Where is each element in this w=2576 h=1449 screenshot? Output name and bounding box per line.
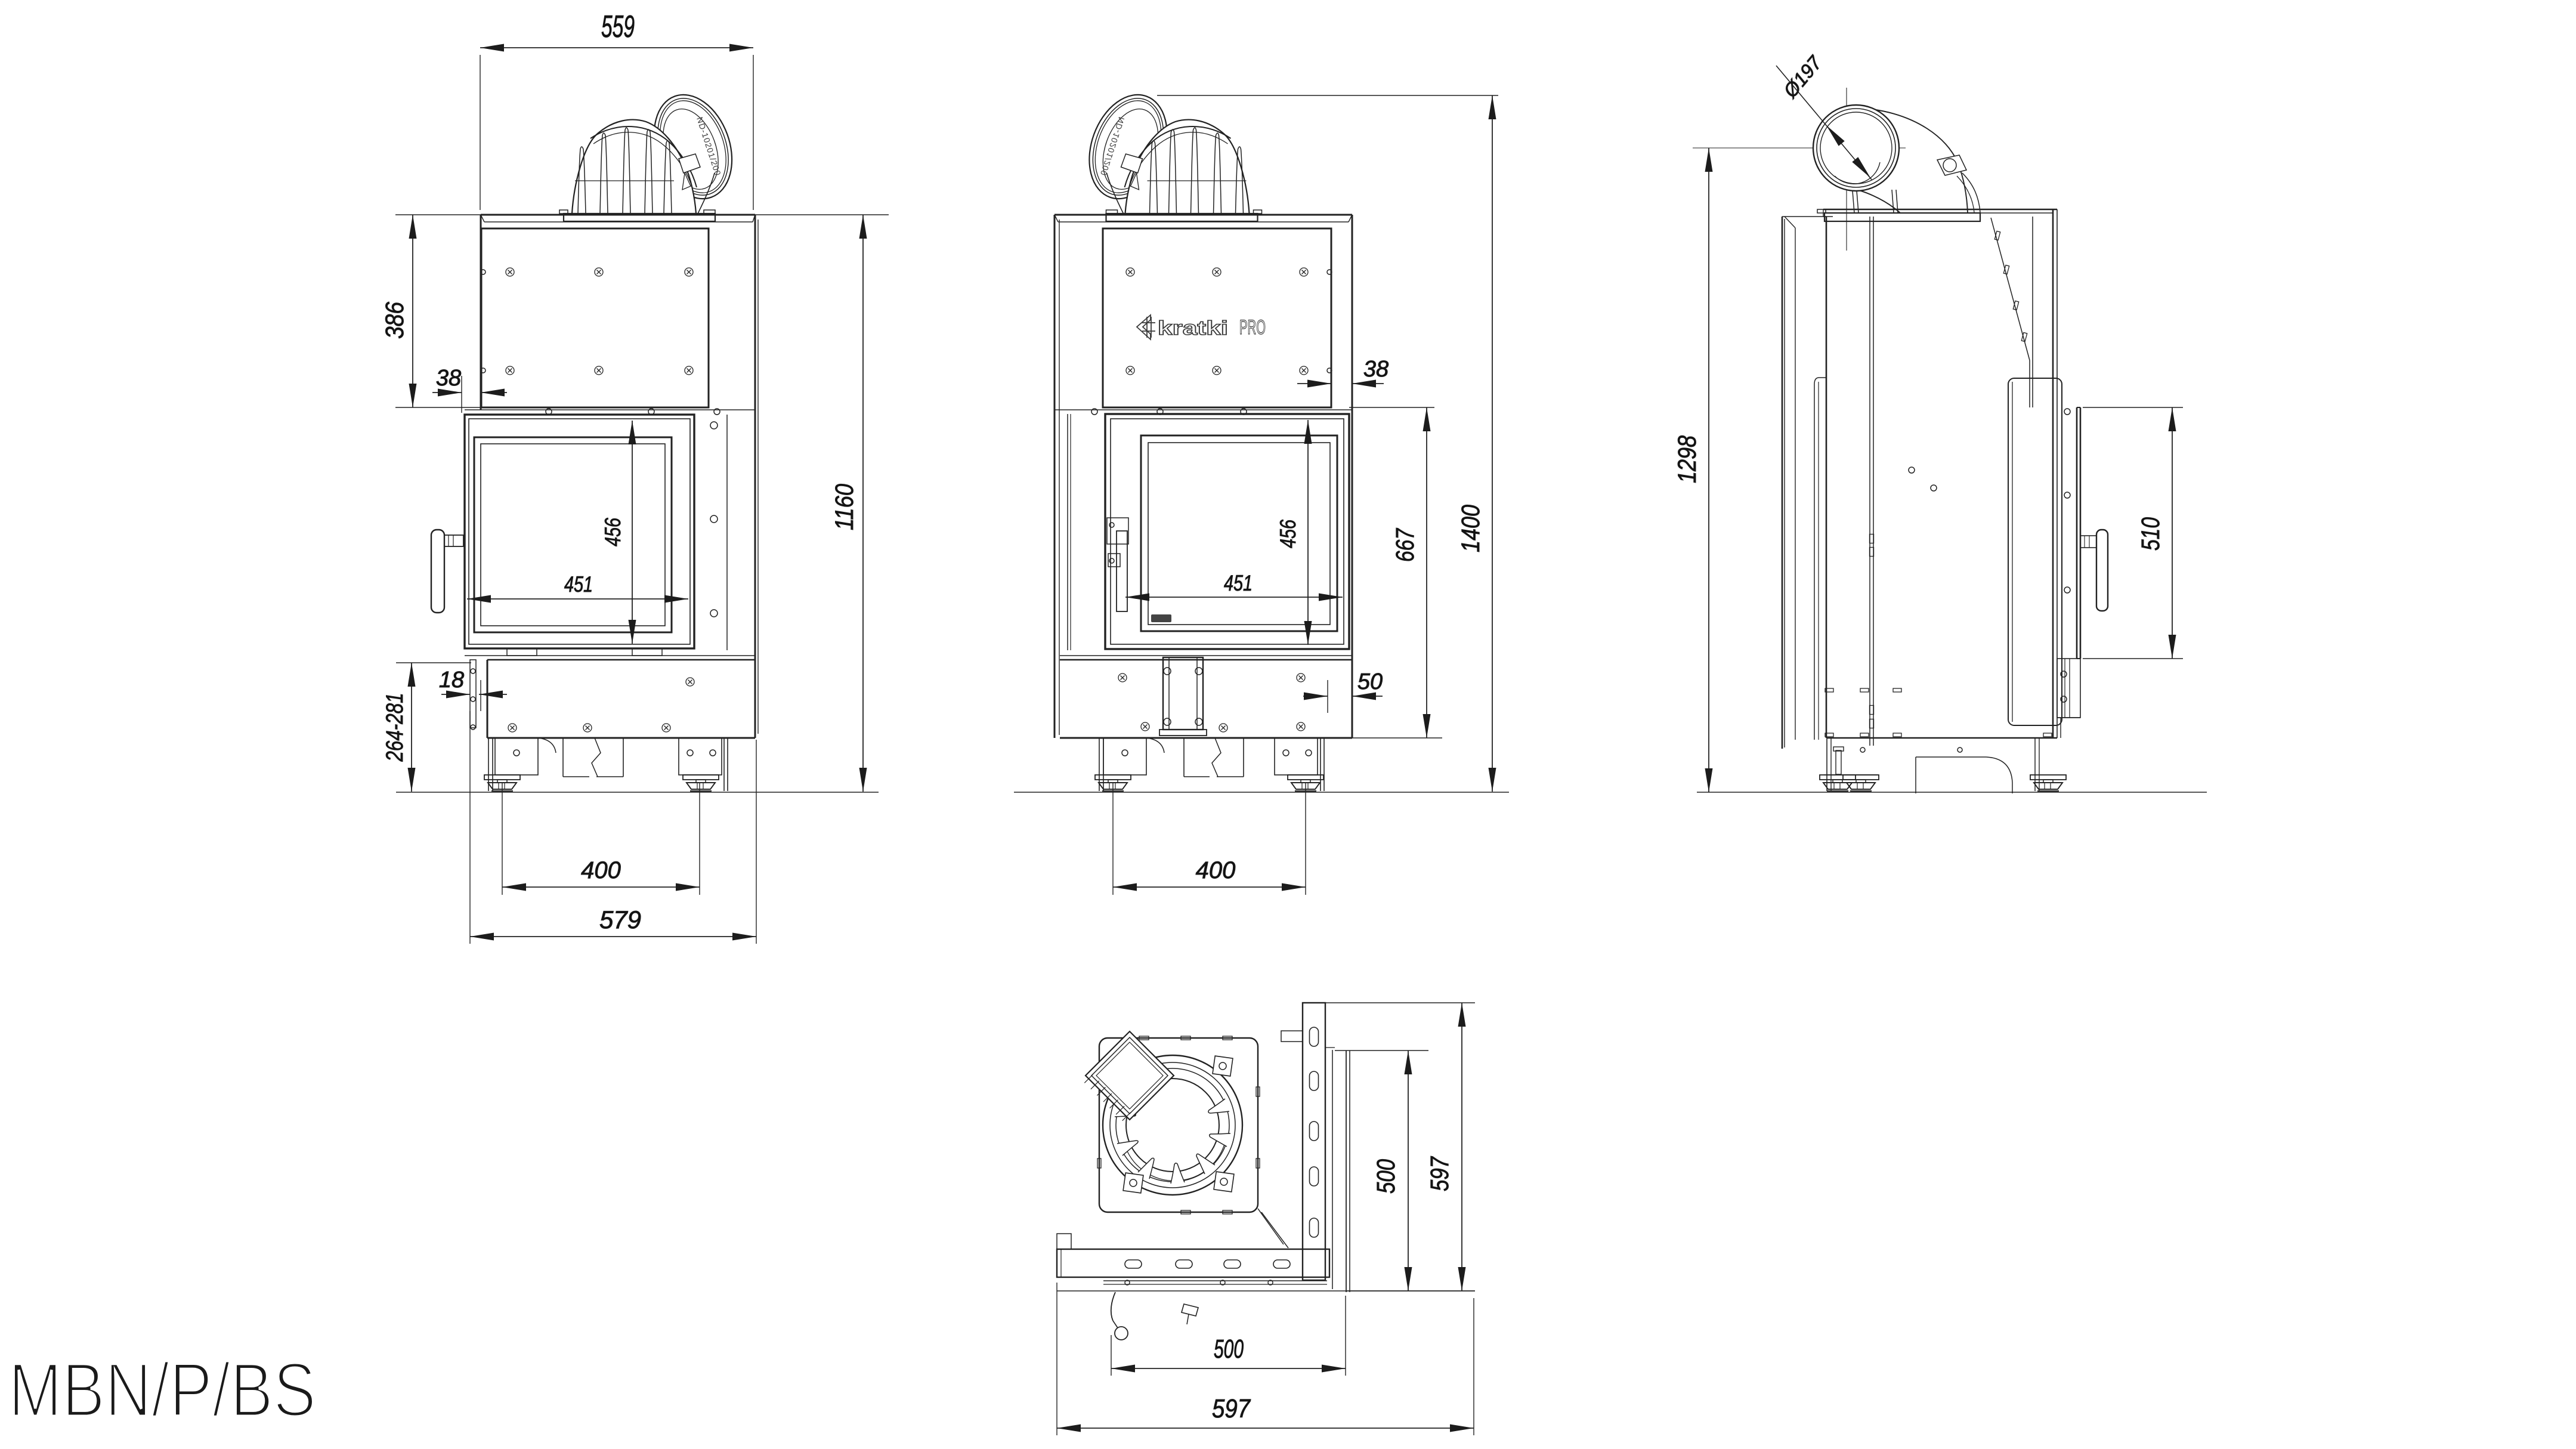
svg-text:400: 400	[581, 857, 621, 883]
svg-text:1160: 1160	[830, 484, 859, 530]
svg-text:264-281: 264-281	[382, 693, 408, 762]
svg-text:500: 500	[1372, 1159, 1400, 1194]
svg-text:1400: 1400	[1456, 505, 1485, 552]
svg-text:579: 579	[599, 906, 641, 934]
svg-text:PRO: PRO	[1239, 316, 1266, 339]
svg-text:667: 667	[1391, 527, 1420, 562]
svg-text:451: 451	[1224, 571, 1253, 595]
svg-text:MBN/P/BS: MBN/P/BS	[8, 1348, 316, 1433]
svg-text:1298: 1298	[1673, 435, 1702, 483]
svg-text:451: 451	[564, 572, 593, 597]
svg-text:500: 500	[1214, 1334, 1244, 1364]
svg-text:456: 456	[1276, 520, 1300, 548]
svg-text:38: 38	[1363, 357, 1388, 382]
svg-text:597: 597	[1212, 1394, 1251, 1423]
svg-text:597: 597	[1425, 1156, 1454, 1191]
svg-text:559: 559	[601, 10, 635, 44]
svg-text:18: 18	[439, 668, 464, 693]
svg-text:510: 510	[2136, 517, 2165, 551]
svg-text:kratki: kratki	[1158, 317, 1228, 339]
svg-text:50: 50	[1357, 669, 1383, 694]
svg-text:400: 400	[1196, 857, 1236, 883]
svg-text:456: 456	[601, 518, 625, 546]
svg-text:386: 386	[381, 302, 409, 339]
svg-text:38: 38	[436, 366, 461, 391]
